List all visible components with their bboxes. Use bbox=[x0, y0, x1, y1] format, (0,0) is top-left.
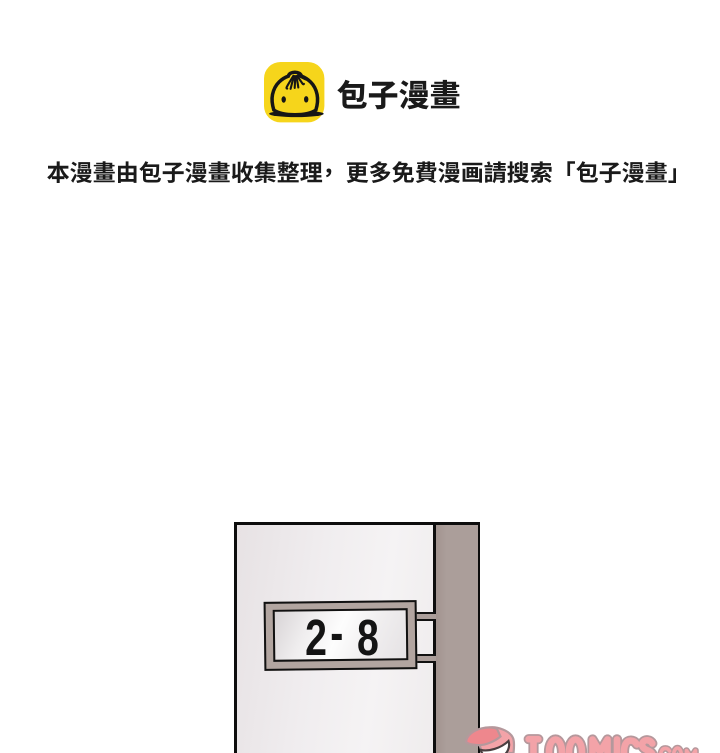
svg-text:2: 2 bbox=[305, 609, 327, 665]
svg-text:-: - bbox=[330, 605, 343, 661]
svg-text:8: 8 bbox=[357, 609, 379, 665]
